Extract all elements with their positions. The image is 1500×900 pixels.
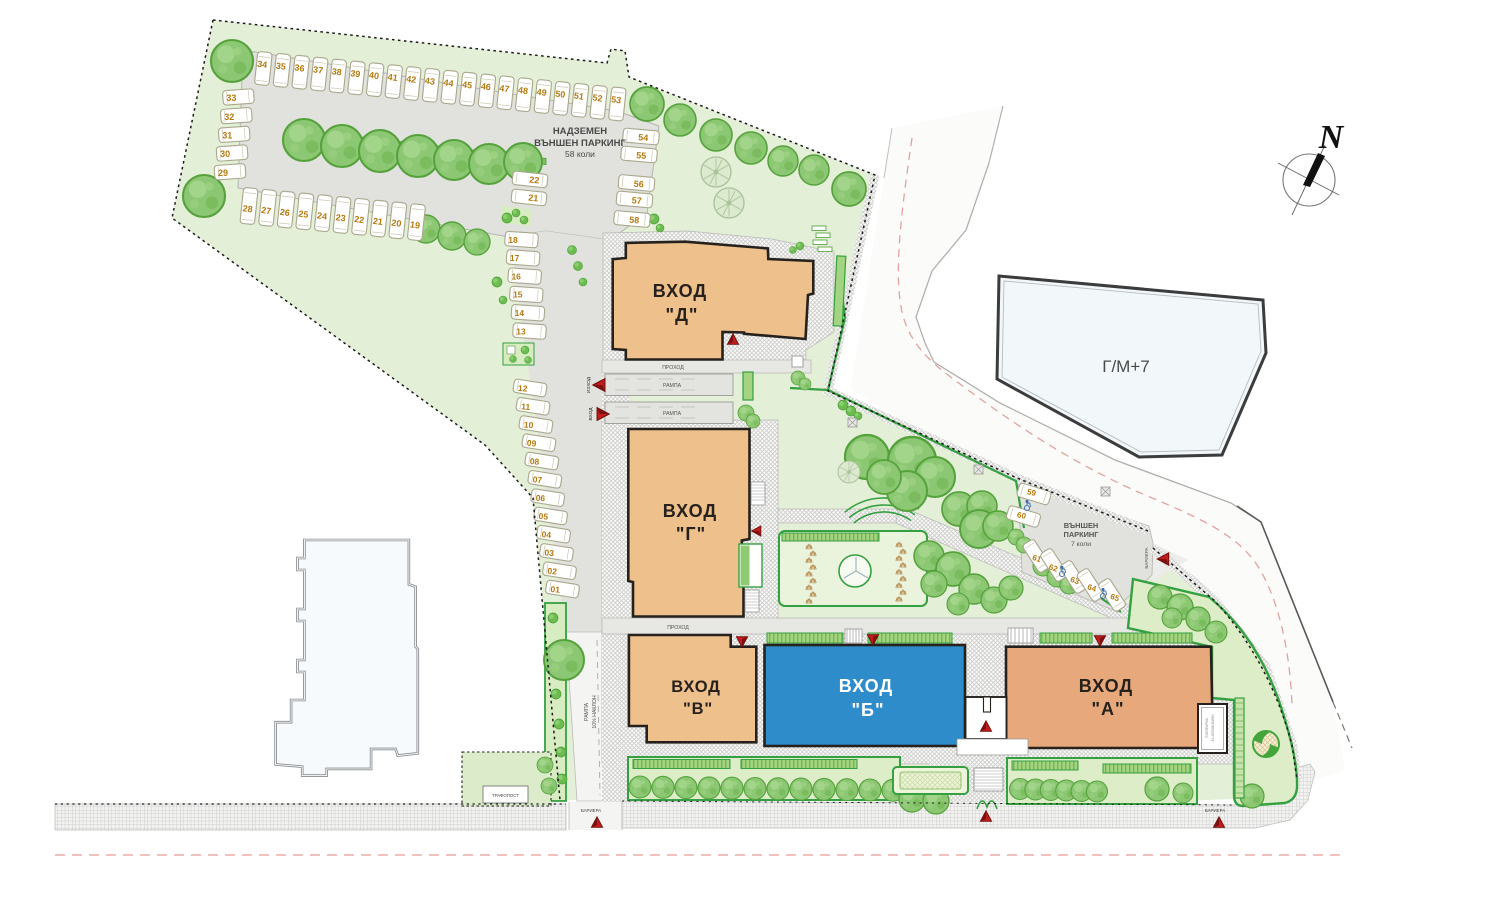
svg-text:15: 15 [513,290,523,300]
svg-text:22: 22 [529,175,540,186]
svg-text:54: 54 [638,132,649,143]
svg-text:26: 26 [279,207,290,218]
svg-text:11: 11 [521,401,531,412]
svg-text:Г/М+7: Г/М+7 [1102,357,1149,376]
svg-text:"Б": "Б" [851,700,884,720]
svg-text:57: 57 [631,195,642,206]
svg-text:07: 07 [532,474,543,485]
svg-text:21: 21 [372,216,383,227]
svg-text:"Д": "Д" [666,305,699,325]
svg-text:"В": "В" [683,700,713,718]
svg-text:32: 32 [224,112,234,122]
svg-text:РАМПА: РАМПА [663,411,682,417]
svg-text:ПРОХОД: ПРОХОД [662,365,684,371]
svg-text:02: 02 [547,566,558,577]
svg-text:ВХОД: ВХОД [671,678,720,696]
svg-text:31: 31 [222,131,232,141]
svg-text:35: 35 [275,61,286,72]
svg-text:51: 51 [573,90,584,101]
svg-text:58 коли: 58 коли [565,149,595,159]
svg-text:42: 42 [406,74,417,85]
svg-text:27: 27 [261,205,272,216]
svg-text:01: 01 [550,584,561,595]
svg-text:29: 29 [218,168,228,178]
svg-text:7 коли: 7 коли [1071,541,1091,548]
svg-text:33: 33 [226,93,236,103]
svg-text:ВХОД: ВХОД [839,676,893,696]
svg-text:36: 36 [294,62,305,73]
svg-text:21: 21 [528,193,539,204]
svg-text:04: 04 [541,529,552,540]
svg-text:13: 13 [516,326,526,336]
svg-text:ЗА АВТОМОБИЛИ: ЗА АВТОМОБИЛИ [1211,714,1215,742]
svg-text:08: 08 [529,456,540,467]
svg-text:БАРИЕРА: БАРИЕРА [1205,808,1225,813]
svg-text:52: 52 [592,92,603,103]
svg-text:20: 20 [391,218,402,229]
svg-text:40: 40 [368,70,379,81]
svg-text:14: 14 [515,308,525,318]
svg-text:12: 12 [518,383,529,394]
svg-text:ВЪНШЕН ПАРКИНГ: ВЪНШЕН ПАРКИНГ [534,138,626,149]
svg-text:45: 45 [461,79,472,90]
svg-text:22: 22 [354,214,365,225]
svg-text:30: 30 [220,149,230,159]
svg-text:55: 55 [636,150,647,161]
svg-text:50: 50 [555,89,566,100]
svg-text:23: 23 [335,212,346,223]
svg-text:БАРИЕРА: БАРИЕРА [1144,546,1149,568]
svg-text:03: 03 [544,547,555,558]
svg-text:ВХОД: ВХОД [663,501,717,521]
svg-text:05: 05 [538,511,549,522]
svg-text:06: 06 [535,493,546,504]
svg-text:N: N [1318,119,1345,156]
svg-text:44: 44 [443,77,454,88]
svg-text:18: 18 [508,235,518,245]
svg-text:53: 53 [611,94,622,105]
svg-text:43: 43 [424,75,435,86]
svg-text:49: 49 [536,87,547,98]
svg-text:"Г": "Г" [676,524,706,544]
svg-text:19: 19 [409,219,420,230]
svg-text:56: 56 [633,179,644,190]
svg-text:ВХОД: ВХОД [653,281,707,301]
svg-text:46: 46 [480,81,491,92]
svg-text:16: 16 [511,271,521,281]
svg-text:58: 58 [629,215,640,226]
svg-text:10: 10 [524,420,535,431]
svg-text:ВЪНШЕН: ВЪНШЕН [1064,521,1098,530]
svg-text:БАРИЕРА: БАРИЕРА [581,808,601,813]
svg-text:25: 25 [298,209,309,220]
svg-text:09: 09 [527,438,538,449]
svg-text:48: 48 [517,85,528,96]
svg-text:47: 47 [499,83,510,94]
svg-text:24: 24 [316,210,327,221]
svg-text:28: 28 [242,203,253,214]
svg-text:ПЛАТФОРМА: ПЛАТФОРМА [1205,717,1209,738]
svg-text:ВХОД: ВХОД [588,407,594,421]
svg-text:17: 17 [510,253,520,263]
svg-text:ИЗХОД: ИЗХОД [586,376,592,393]
svg-text:ТРАФОПОСТ: ТРАФОПОСТ [492,793,519,798]
svg-text:РАМПА: РАМПА [584,702,590,721]
svg-text:38: 38 [331,66,342,77]
svg-text:ПАРКИНГ: ПАРКИНГ [1064,530,1100,539]
svg-text:10% НАКЛОН: 10% НАКЛОН [592,695,598,728]
svg-text:НАДЗЕМЕН: НАДЗЕМЕН [553,126,607,137]
svg-text:"А": "А" [1091,699,1124,719]
svg-text:37: 37 [312,64,323,75]
svg-text:РАМПА: РАМПА [663,383,682,389]
svg-text:39: 39 [350,68,361,79]
svg-text:34: 34 [257,59,268,70]
svg-text:ПРОХОД: ПРОХОД [667,625,689,631]
svg-text:41: 41 [387,72,398,83]
svg-text:ВХОД: ВХОД [1079,676,1133,696]
